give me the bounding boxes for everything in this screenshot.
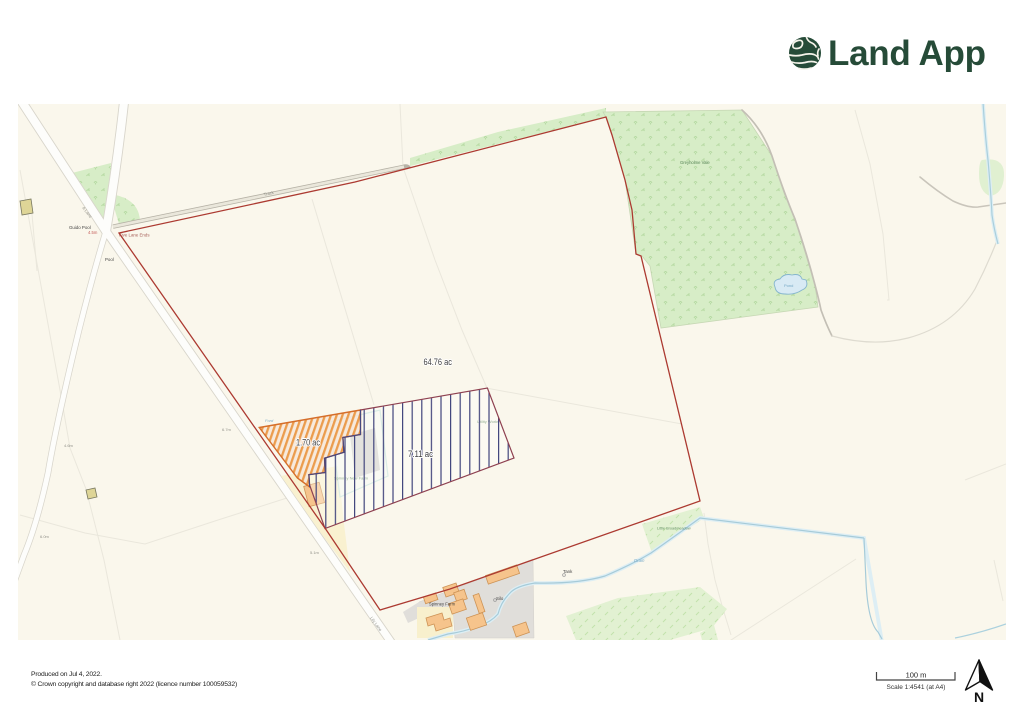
svg-text:Spinney Farm: Spinney Farm [429, 602, 456, 607]
svg-text:Drain: Drain [634, 558, 645, 563]
svg-text:Silo: Silo [496, 596, 504, 601]
svg-text:Greyholme Vale: Greyholme Vale [680, 160, 710, 165]
svg-text:Pool: Pool [105, 257, 114, 262]
svg-text:1.70 ac: 1.70 ac [296, 438, 320, 448]
svg-text:7.11 ac: 7.11 ac [408, 449, 433, 459]
svg-text:64.76 ac: 64.76 ac [423, 357, 452, 368]
svg-text:6.0m: 6.0m [40, 534, 50, 539]
svg-text:Tank: Tank [563, 569, 573, 574]
svg-text:Ford: Ford [265, 418, 274, 423]
svg-text:4.6m: 4.6m [64, 443, 74, 448]
svg-text:N: N [974, 689, 984, 705]
svg-text:Little Broadmeadow: Little Broadmeadow [657, 527, 691, 531]
svg-text:Scale 1:4541 (at A4): Scale 1:4541 (at A4) [887, 684, 946, 691]
svg-text:100 m: 100 m [906, 671, 927, 680]
svg-text:5.1m: 5.1m [310, 550, 320, 555]
svg-text:6.7m: 6.7m [222, 427, 232, 432]
svg-text:Five Lane Ends: Five Lane Ends [119, 233, 150, 238]
svg-text:4.5m: 4.5m [88, 230, 98, 235]
svg-text:Land App: Land App [828, 36, 986, 72]
svg-text:Pond: Pond [784, 283, 793, 288]
